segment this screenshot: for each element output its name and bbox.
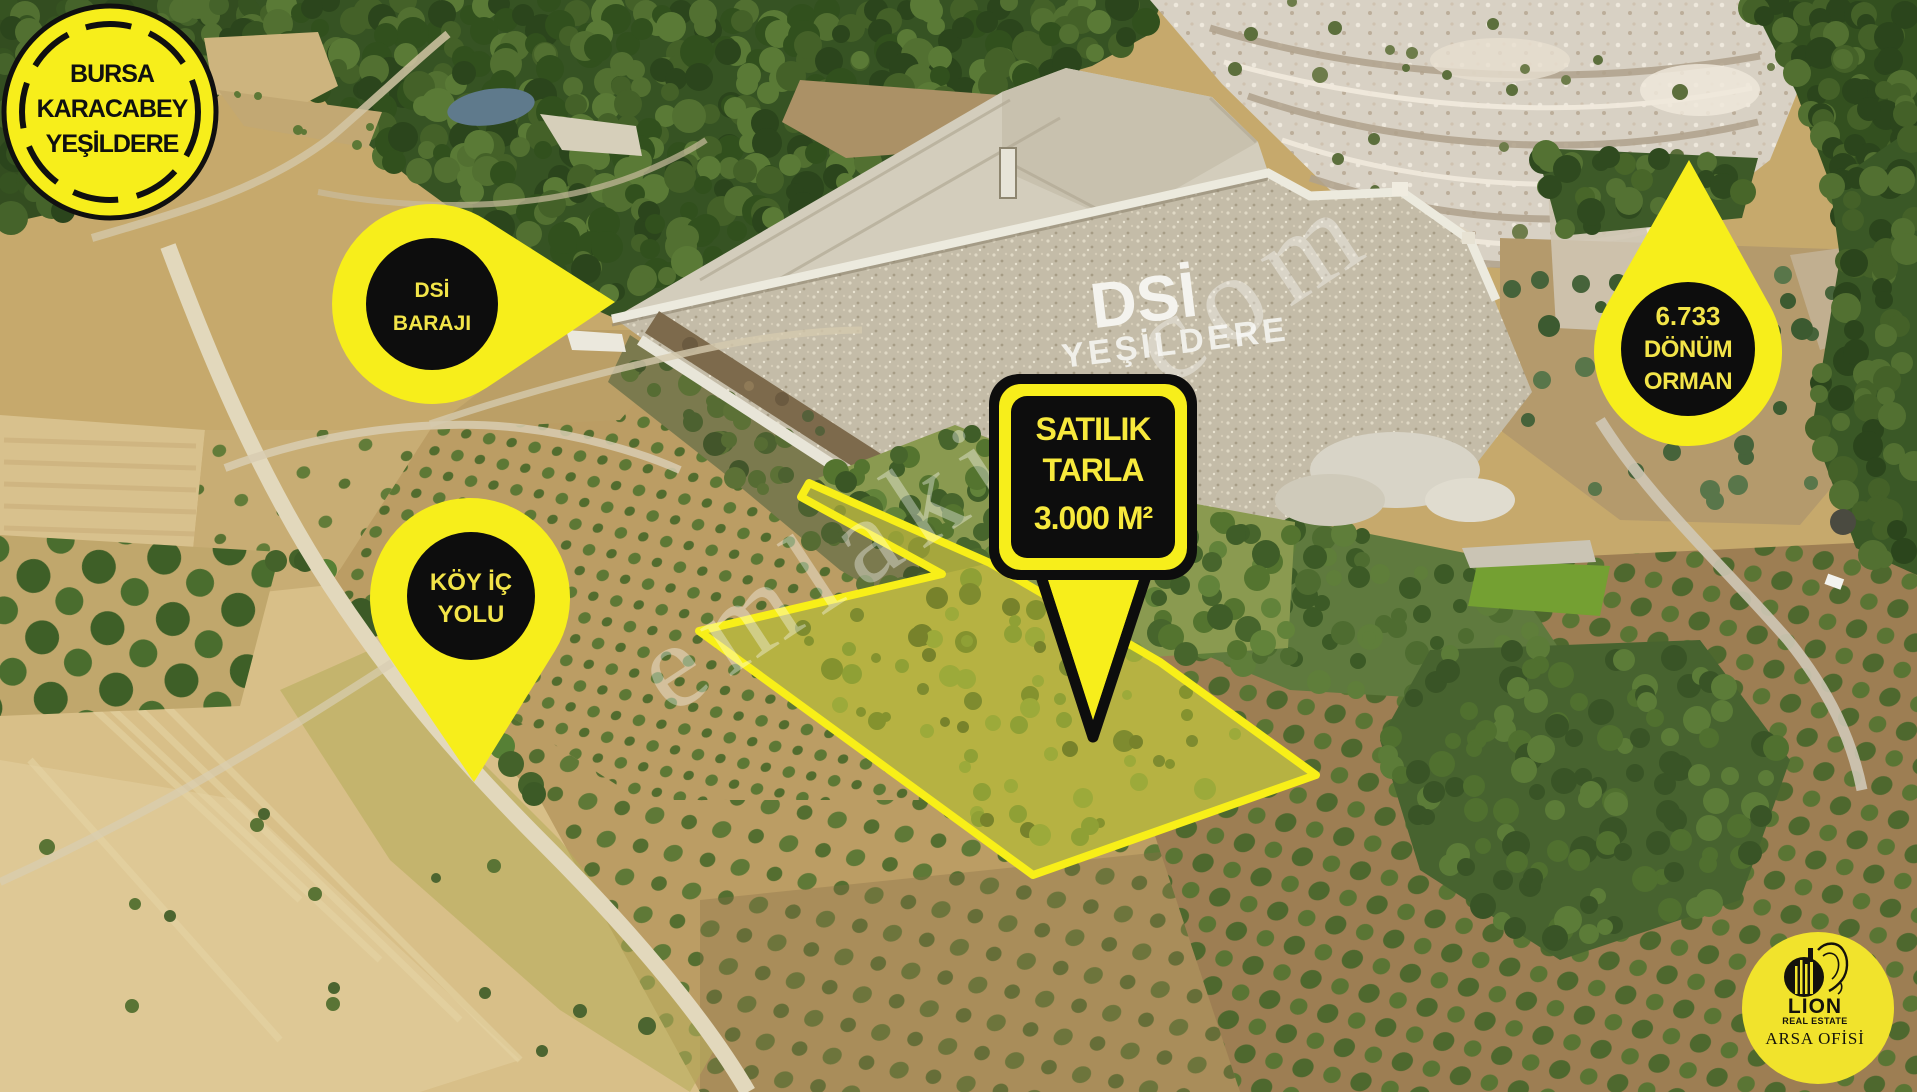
svg-text:KARACABEY: KARACABEY [37, 95, 189, 123]
svg-text:ORMAN: ORMAN [1644, 368, 1732, 395]
svg-text:YEŞİLDERE: YEŞİLDERE [46, 130, 179, 158]
svg-text:KÖY İÇ: KÖY İÇ [430, 569, 512, 596]
svg-text:DÖNÜM: DÖNÜM [1644, 336, 1732, 363]
svg-text:YOLU: YOLU [438, 601, 505, 628]
svg-text:TARLA: TARLA [1042, 452, 1144, 488]
svg-text:REAL ESTATE: REAL ESTATE [1782, 1016, 1847, 1026]
svg-text:DSİ: DSİ [414, 279, 449, 302]
svg-text:ARSA OFİSİ: ARSA OFİSİ [1765, 1029, 1864, 1048]
svg-text:6.733: 6.733 [1655, 301, 1720, 331]
svg-text:BARAJI: BARAJI [393, 312, 471, 335]
svg-text:SATILIK: SATILIK [1035, 411, 1151, 447]
svg-text:LION: LION [1788, 995, 1842, 1018]
svg-text:BURSA: BURSA [70, 60, 155, 88]
svg-text:3.000 M²: 3.000 M² [1034, 500, 1153, 536]
